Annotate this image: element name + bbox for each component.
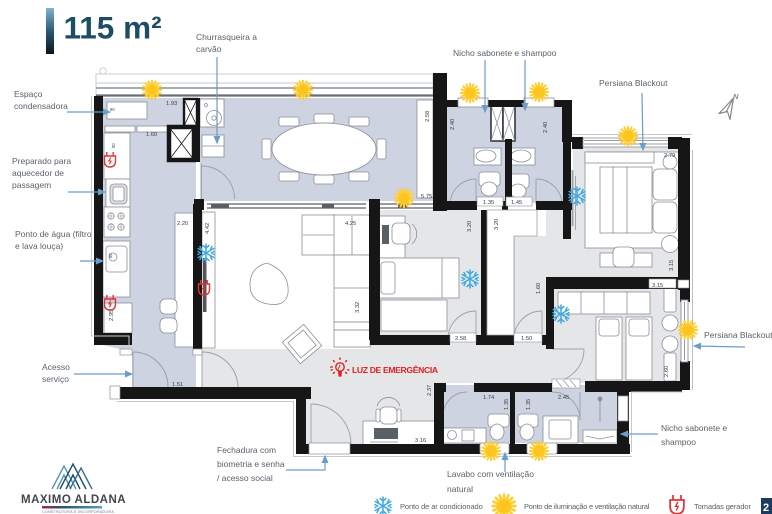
svg-text:2: 2 — [763, 502, 769, 514]
svg-text:Ponto de ar condicionado: Ponto de ar condicionado — [400, 502, 483, 511]
svg-text:2.79: 2.79 — [664, 153, 675, 159]
svg-text:3.20: 3.20 — [467, 221, 473, 232]
svg-text:natural: natural — [447, 484, 473, 494]
svg-text:1.74: 1.74 — [483, 395, 495, 401]
svg-text:3.15: 3.15 — [669, 260, 675, 271]
svg-text:Acesso: Acesso — [42, 362, 70, 372]
svg-text:Ponto de iluminação e ventilaç: Ponto de iluminação e ventilação natural — [524, 502, 650, 511]
svg-text:2.40: 2.40 — [543, 122, 549, 133]
svg-text:passagem: passagem — [12, 180, 51, 190]
svg-text:e lava louça): e lava louça) — [15, 241, 63, 251]
svg-text:4.42: 4.42 — [205, 223, 211, 234]
svg-text:3.32: 3.32 — [355, 302, 361, 313]
svg-text:Churrasqueira a: Churrasqueira a — [196, 32, 257, 42]
svg-text:Lavabo com ventilação: Lavabo com ventilação — [447, 469, 534, 479]
svg-text:condensadora: condensadora — [14, 101, 68, 111]
svg-text:2.58: 2.58 — [455, 336, 466, 342]
svg-text:90: 90 — [111, 143, 116, 148]
svg-text:2.45: 2.45 — [558, 395, 569, 401]
svg-text:115 m²: 115 m² — [64, 10, 162, 46]
svg-text:1.60: 1.60 — [146, 132, 157, 138]
svg-text:Persiana Blackout: Persiana Blackout — [704, 330, 772, 340]
svg-text:LUZ DE EMERGÊNCIA: LUZ DE EMERGÊNCIA — [352, 364, 438, 375]
svg-text:2.20: 2.20 — [177, 221, 188, 227]
svg-text:1.35: 1.35 — [526, 399, 532, 410]
svg-text:Espaço: Espaço — [14, 89, 43, 99]
svg-text:1.93: 1.93 — [166, 101, 177, 107]
svg-text:3.16: 3.16 — [415, 438, 426, 444]
svg-text:Persiana Blackout: Persiana Blackout — [599, 78, 668, 88]
svg-text:MAXIMO ALDANA: MAXIMO ALDANA — [21, 494, 126, 506]
svg-text:Fechadura com: Fechadura com — [217, 445, 276, 455]
svg-text:Preparado para: Preparado para — [12, 156, 71, 166]
svg-text:2.40: 2.40 — [450, 119, 456, 130]
svg-text:2.95: 2.95 — [109, 310, 115, 321]
svg-text:biometria e senha: biometria e senha — [217, 459, 285, 469]
svg-text:1.35: 1.35 — [504, 399, 510, 410]
svg-text:1.51: 1.51 — [172, 382, 183, 388]
svg-text:aquecedor de: aquecedor de — [12, 168, 64, 178]
svg-text:2.37: 2.37 — [427, 385, 433, 396]
svg-text:90: 90 — [110, 107, 115, 112]
svg-text:Nicho sabonete e shampoo: Nicho sabonete e shampoo — [453, 48, 557, 58]
svg-text:1.45: 1.45 — [511, 200, 522, 206]
svg-text:3.15: 3.15 — [652, 283, 663, 289]
svg-text:4.25: 4.25 — [345, 221, 356, 227]
svg-text:2.60: 2.60 — [664, 366, 670, 377]
svg-text:1.50: 1.50 — [521, 336, 532, 342]
svg-text:shampoo: shampoo — [661, 437, 696, 447]
svg-text:Ponto de água (filtro: Ponto de água (filtro — [15, 229, 92, 239]
svg-text:1.60: 1.60 — [536, 283, 542, 294]
svg-text:1.35: 1.35 — [483, 200, 494, 206]
svg-text:Tomadas gerador: Tomadas gerador — [694, 502, 751, 511]
svg-text:N: N — [733, 92, 739, 101]
svg-text:/ acesso social: / acesso social — [217, 473, 273, 483]
svg-text:3.20: 3.20 — [494, 219, 500, 230]
svg-text:serviço: serviço — [42, 374, 69, 384]
svg-text:Nicho sabonete e: Nicho sabonete e — [661, 423, 727, 433]
svg-text:carvão: carvão — [196, 44, 222, 54]
svg-text:5.75: 5.75 — [421, 194, 432, 200]
svg-text:2.58: 2.58 — [425, 111, 431, 122]
svg-text:CONSTRUTORA E INCORPORADORA: CONSTRUTORA E INCORPORADORA — [42, 510, 114, 514]
svg-text:90: 90 — [108, 253, 113, 258]
